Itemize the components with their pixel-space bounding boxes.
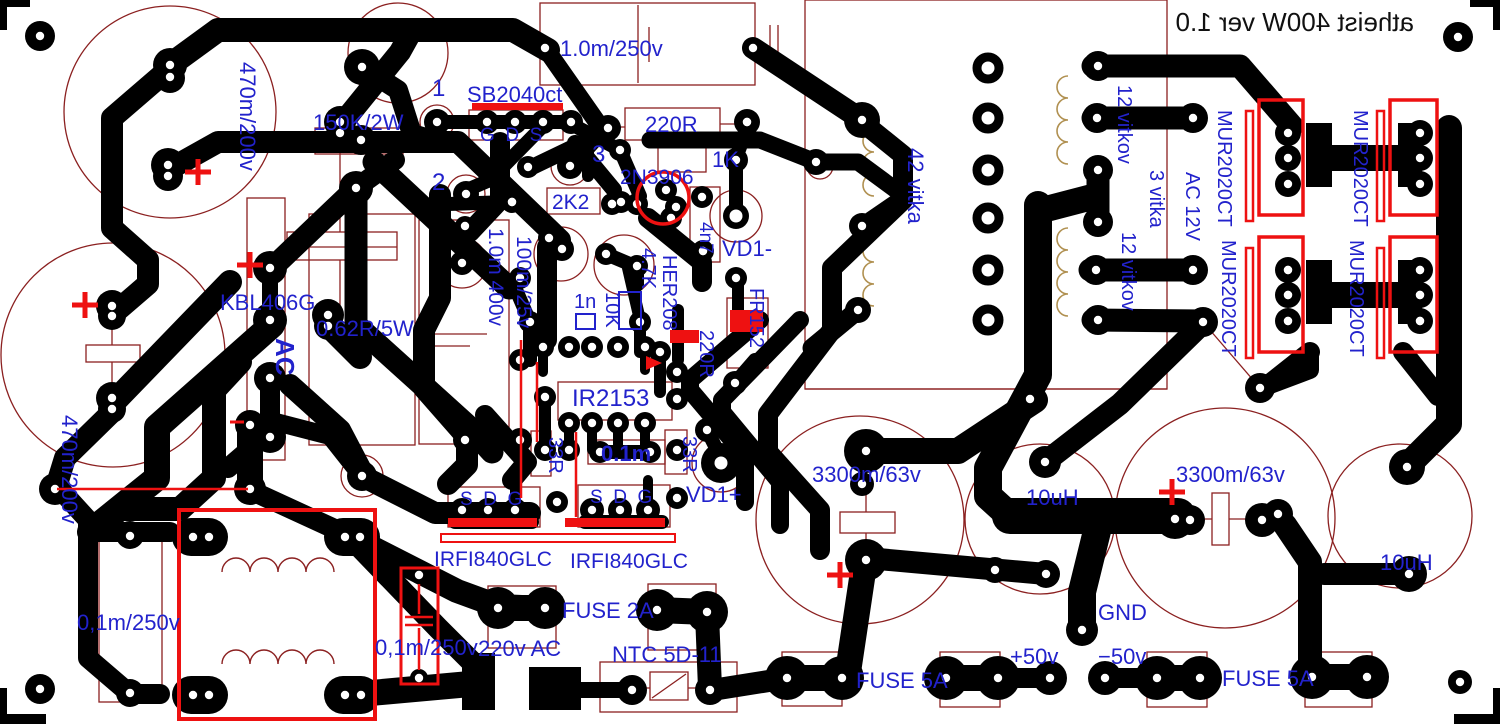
svg-text:KBL406G: KBL406G [220,290,315,315]
svg-text:42 vitka: 42 vitka [903,148,928,225]
svg-text:0.62R/5W: 0.62R/5W [316,316,414,341]
svg-text:1n: 1n [574,291,596,313]
svg-text:470m/200v: 470m/200v [235,62,260,171]
svg-text:MUR2020CT: MUR2020CT [1213,110,1235,227]
svg-text:3: 3 [592,141,605,168]
svg-text:FUSE 5A: FUSE 5A [1222,666,1314,691]
svg-text:1K: 1K [712,147,739,172]
svg-text:SB2040ct: SB2040ct [467,82,562,107]
svg-text:G D S: G D S [480,125,542,146]
svg-text:12 vitkov: 12 vitkov [1117,232,1139,311]
svg-text:MUR2020CT: MUR2020CT [1217,240,1239,357]
svg-text:0,1m/250v: 0,1m/250v [77,610,180,635]
svg-text:12 vitkov: 12 vitkov [1113,85,1135,164]
svg-text:1.0m/250v: 1.0m/250v [560,36,663,61]
svg-text:atheist 400W ver 1.0: atheist 400W ver 1.0 [1176,7,1414,37]
svg-text:33R: 33R [678,436,700,473]
svg-text:33R: 33R [544,437,566,474]
svg-text:1.0m 400v: 1.0m 400v [484,228,507,327]
svg-text:220R: 220R [645,112,698,137]
svg-text:+50v: +50v [1010,644,1058,669]
svg-text:4n7: 4n7 [695,222,716,254]
svg-text:1: 1 [432,75,445,102]
svg-text:IRFI840GLC: IRFI840GLC [434,548,552,571]
svg-text:IR2153: IR2153 [572,385,649,412]
svg-text:FR152: FR152 [745,288,767,348]
svg-text:−50v: −50v [1098,644,1146,669]
svg-text:2N3906: 2N3906 [620,166,694,189]
svg-text:4.7K: 4.7K [637,248,659,290]
svg-text:10uH: 10uH [1380,550,1433,575]
svg-text:MUR2020CT: MUR2020CT [1349,110,1371,227]
svg-text:3300m/63v: 3300m/63v [812,462,921,487]
svg-text:S D G: S D G [590,487,652,508]
svg-text:GND: GND [1098,600,1147,625]
svg-text:HER208: HER208 [658,255,680,331]
svg-text:VD1+: VD1+ [686,482,742,507]
svg-text:2K2: 2K2 [552,191,589,214]
svg-text:150K/2W: 150K/2W [313,110,404,135]
svg-text:VD1-: VD1- [722,236,772,261]
svg-text:MUR2020CT: MUR2020CT [1345,240,1367,357]
svg-text:3300m/63v: 3300m/63v [1176,462,1285,487]
svg-text:0,1m/250v: 0,1m/250v [375,635,478,660]
svg-text:FUSE 5A: FUSE 5A [856,668,948,693]
svg-text:100m/25v: 100m/25v [512,236,535,329]
svg-text:220v AC: 220v AC [478,636,561,661]
svg-text:IRFI840GLC: IRFI840GLC [570,550,688,573]
svg-text:AC 12V: AC 12V [1181,172,1203,242]
svg-text:10uH: 10uH [1026,485,1079,510]
svg-text:3 vitka: 3 vitka [1145,170,1167,229]
svg-text:0.1m: 0.1m [601,441,651,466]
svg-text:S D G: S D G [460,489,522,510]
svg-text:NTC 5D-11: NTC 5D-11 [612,642,722,667]
svg-text:220R: 220R [695,330,717,378]
svg-text:AC: AC [270,338,300,376]
svg-text:2: 2 [432,169,445,196]
svg-text:470m/200v: 470m/200v [57,415,82,524]
svg-text:FUSE 2A: FUSE 2A [562,598,654,623]
